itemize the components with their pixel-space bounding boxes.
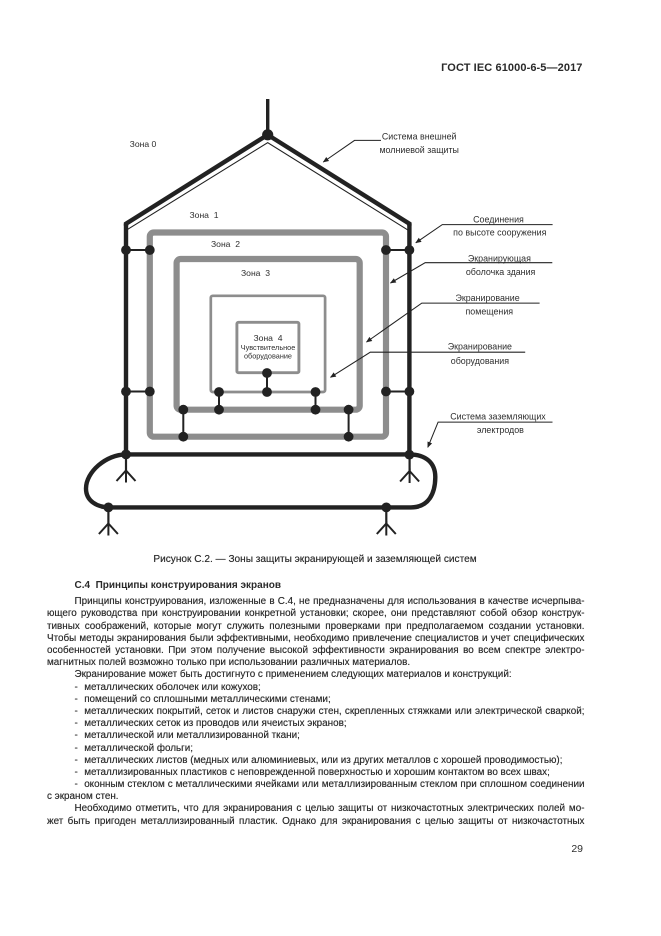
- svg-text:Зона 2: Зона 2: [211, 239, 240, 249]
- svg-text:оборудования: оборудования: [451, 356, 509, 366]
- svg-text:Система заземляющих: Система заземляющих: [450, 412, 546, 422]
- svg-text:молниевой защиты: молниевой защиты: [379, 145, 459, 155]
- svg-text:Экранирующая: Экранирующая: [468, 253, 531, 263]
- svg-text:Зона 3: Зона 3: [241, 268, 270, 278]
- svg-text:Экранирование: Экранирование: [455, 293, 519, 303]
- svg-text:Экранирование: Экранирование: [448, 342, 512, 352]
- svg-text:Зона 0: Зона 0: [130, 139, 157, 149]
- svg-text:оболочка здания: оболочка здания: [466, 267, 536, 277]
- svg-text:по высоте сооружения: по высоте сооружения: [453, 228, 546, 238]
- svg-text:электродов: электродов: [477, 425, 524, 435]
- svg-text:Зона 1: Зона 1: [189, 210, 218, 220]
- svg-text:Соединения: Соединения: [473, 215, 524, 225]
- svg-text:помещения: помещения: [466, 307, 514, 317]
- svg-text:Зона 4: Зона 4: [253, 333, 282, 343]
- svg-text:оборудование: оборудование: [244, 351, 292, 360]
- svg-text:Система внешней: Система внешней: [382, 131, 457, 141]
